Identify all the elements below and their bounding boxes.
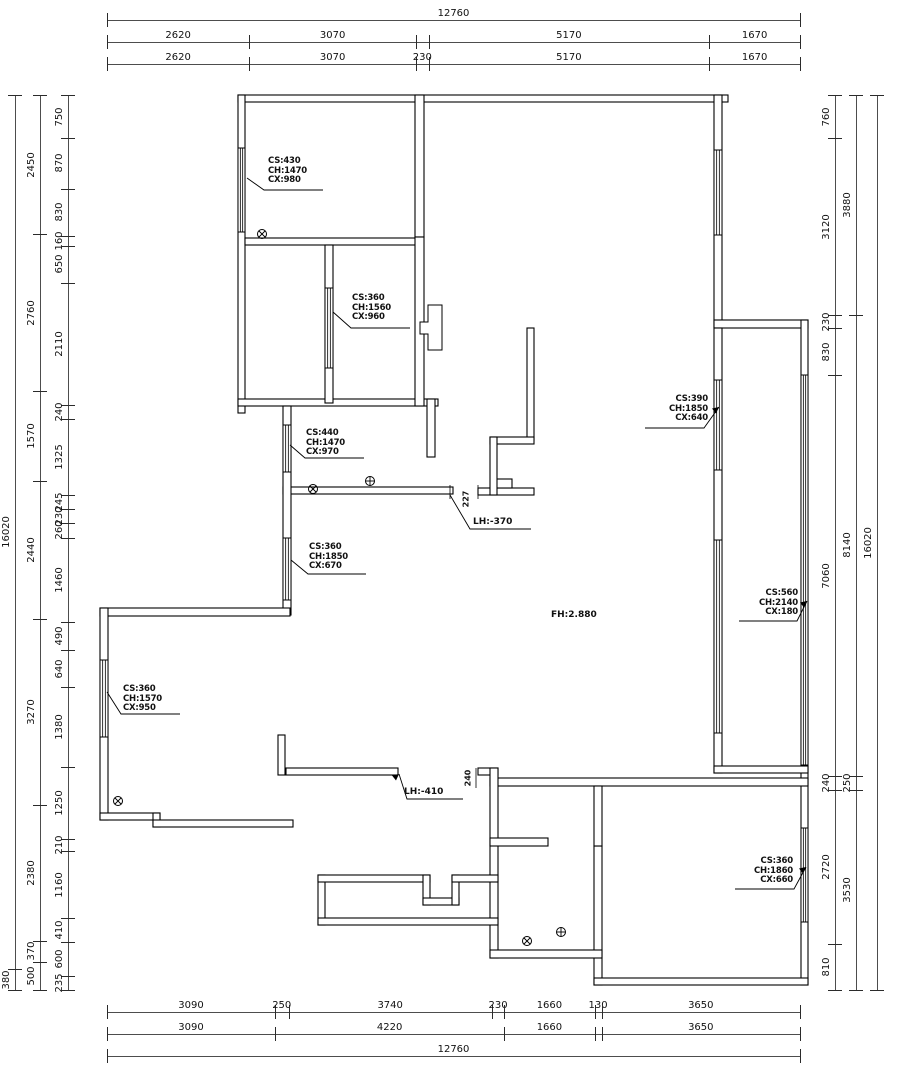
wall-segment xyxy=(153,820,293,827)
floor-plan-drawing xyxy=(0,0,906,1068)
window-spec-label: CS:560 CH:2140 CX:180 xyxy=(742,589,798,618)
window-glazing xyxy=(283,538,291,600)
window-glazing xyxy=(714,380,722,470)
floor-plan-canvas: 12760 2620307051701670 26203070230517016… xyxy=(0,0,906,1068)
wall-segment xyxy=(100,813,160,820)
gap-dimension-upper: 227 xyxy=(462,491,471,508)
window-glazing xyxy=(714,150,722,235)
wall-segment xyxy=(278,735,285,775)
wall-segment xyxy=(245,238,420,245)
wall-segment xyxy=(490,950,602,958)
wall-segment xyxy=(318,918,498,925)
window-spec-label: CS:360 CH:1850 CX:670 xyxy=(309,543,348,572)
wall-segment xyxy=(496,479,512,488)
wall-segment xyxy=(238,95,245,413)
wall-segment xyxy=(100,608,290,616)
wall-segment xyxy=(286,768,398,775)
wall-segment xyxy=(415,95,424,237)
wall-segment xyxy=(238,95,728,102)
window-glazing xyxy=(714,540,722,733)
wall-segment xyxy=(714,320,808,328)
window-glazing xyxy=(238,148,245,232)
window-spec-label: CS:430 CH:1470 CX:980 xyxy=(268,157,307,186)
wall-segment xyxy=(714,766,808,773)
level-height-label-upper: LH:-370 xyxy=(473,517,512,527)
window-spec-label: CS:360 CH:1560 CX:960 xyxy=(352,294,391,323)
window-glazing xyxy=(325,288,333,368)
wall-segment xyxy=(594,978,808,985)
wall-segment xyxy=(490,437,497,495)
wall-segment xyxy=(490,838,548,846)
window-spec-label: CS:440 CH:1470 CX:970 xyxy=(306,429,345,458)
window-spec-label: CS:360 CH:1570 CX:950 xyxy=(123,685,162,714)
floor-height-label: FH:2.880 xyxy=(551,610,597,620)
window-glazing xyxy=(283,425,291,472)
wall-segment xyxy=(238,399,438,406)
wall-segment xyxy=(452,875,498,882)
gap-dimension-lower: 240 xyxy=(464,770,473,787)
wall-segment xyxy=(490,768,498,958)
wall-segment xyxy=(594,786,602,846)
wall-segment xyxy=(318,875,430,882)
window-spec-label: CS:390 CH:1850 CX:640 xyxy=(652,395,708,424)
wall-segment xyxy=(490,778,808,786)
wall-segment xyxy=(478,488,534,495)
window-spec-label: CS:360 CH:1860 CX:660 xyxy=(737,857,793,886)
wall-segment xyxy=(427,399,435,457)
window-glazing xyxy=(100,660,108,737)
level-height-label-lower: LH:-410 xyxy=(404,787,443,797)
wall-segment xyxy=(594,846,602,985)
wall-segment xyxy=(527,328,534,440)
window-glazing xyxy=(801,375,808,765)
